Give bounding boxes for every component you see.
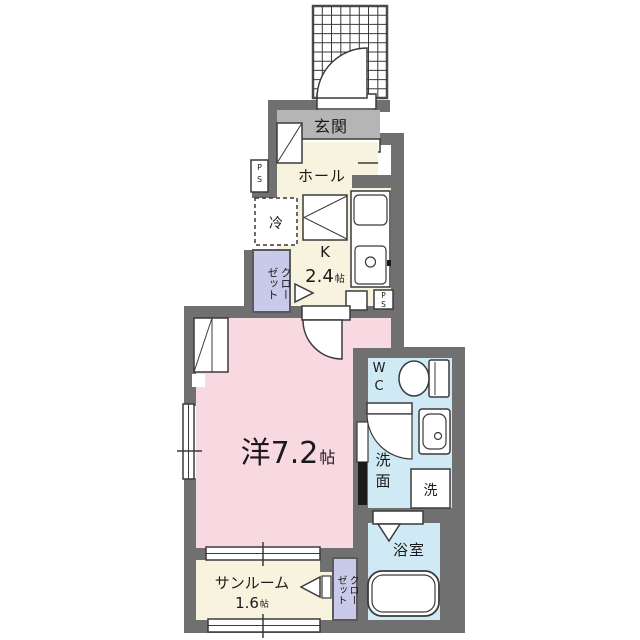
washroom-label: 洗 面	[372, 450, 394, 492]
kitchen-size-unit: 帖	[335, 270, 345, 287]
bath-label: 浴室	[383, 539, 435, 560]
stove-top	[354, 195, 387, 225]
sunroom-label: サンルーム	[200, 572, 304, 593]
pipe-space-upper-label: P S	[251, 162, 268, 186]
wc-door-jamb	[367, 403, 412, 414]
toilet-tank	[429, 360, 449, 397]
sliding-door-panel	[357, 422, 368, 462]
wall-segment	[357, 618, 465, 633]
pillar-notch	[192, 374, 205, 387]
main-room-door-jamb	[302, 306, 350, 320]
kitchen-size: 2.4 帖	[296, 263, 354, 287]
bathtub-icon	[368, 571, 439, 616]
hall-label: ホール	[290, 165, 354, 186]
sunroom-size-value: 1.6	[235, 594, 259, 612]
floor-plan-drawing	[0, 0, 640, 640]
kitchen-faucet	[366, 257, 376, 267]
main-room-label: 洋7.2 帖	[218, 428, 358, 472]
shoe-cabinet-icon	[277, 123, 302, 163]
sunroom-size: 1.6 帖	[212, 592, 292, 612]
pipe-space-lower-label: P S	[374, 291, 393, 309]
wall-segment	[452, 347, 465, 633]
wc-label: W C	[369, 360, 389, 395]
bath-door-jamb	[373, 511, 423, 524]
closet-upper-label: クロー ゼット	[256, 254, 292, 312]
wall-segment	[391, 133, 404, 350]
sunroom-size-unit: 帖	[260, 597, 269, 612]
toilet-icon	[399, 360, 449, 397]
refrigerator-label: 冷	[262, 213, 290, 233]
closet-lower-label: クロー ゼット	[333, 562, 358, 618]
storage-box	[194, 318, 228, 372]
storage-box-icon	[194, 318, 228, 372]
toilet-bowl	[399, 361, 429, 396]
bathtub-inner	[372, 575, 435, 612]
wall-segment	[352, 175, 404, 189]
kitchen-label: K	[312, 243, 338, 261]
genkan-label: 玄関	[303, 113, 359, 137]
range-cabinet-icon	[303, 195, 347, 240]
washroom-sliding-door	[357, 422, 368, 505]
washbasin-icon	[419, 409, 450, 454]
sliding-door-track	[358, 462, 367, 505]
folding-door-bar	[322, 576, 331, 598]
main-room-name-size: 洋7.2	[241, 428, 319, 472]
kitchen-size-value: 2.4	[305, 266, 334, 287]
wall-segment	[353, 347, 465, 358]
counter-tick	[387, 260, 391, 266]
washing-machine-label: 洗	[411, 480, 450, 500]
washbasin-faucet	[435, 433, 442, 440]
kitchen-counter	[351, 191, 391, 287]
range-cabinet-box	[303, 195, 347, 240]
floor-plan: 玄関 ホール 冷 K 2.4 帖 クロー ゼット P S P S 洋7.2 帖 …	[0, 0, 640, 640]
main-room-size-unit: 帖	[319, 444, 335, 472]
wall-stub-over	[320, 558, 333, 572]
wall-segment	[440, 508, 452, 620]
washbasin-bowl	[423, 414, 446, 449]
